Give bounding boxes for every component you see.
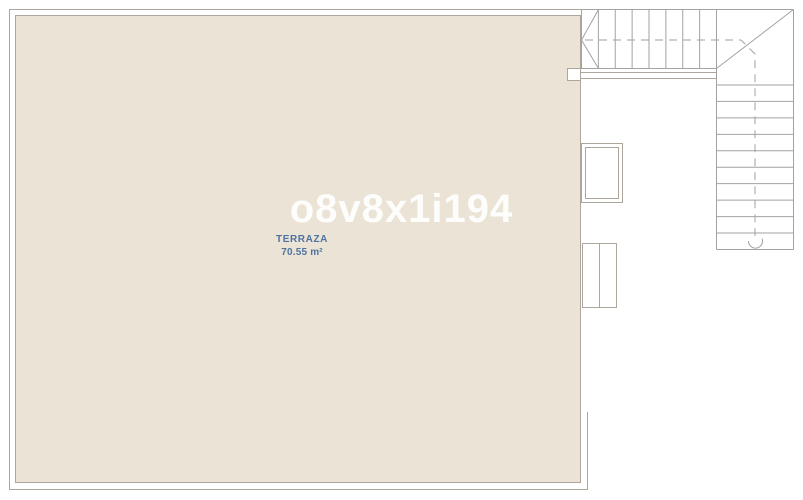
stair-top-run: [581, 10, 794, 69]
winder-diagonal: [582, 40, 599, 69]
floorplan: o8v8x1i194 TERRAZA 70.55 m²: [0, 0, 803, 500]
watermark-text: o8v8x1i194: [0, 187, 803, 232]
duct-box: [583, 244, 617, 308]
winder-diagonal: [582, 10, 599, 41]
room-area: 70.55 m²: [252, 247, 352, 259]
wall-end-cap: [568, 69, 581, 81]
room-label: TERRAZA 70.55 m²: [252, 234, 352, 259]
stair-start-arc: [748, 239, 762, 249]
corner-winder-diagonal: [717, 10, 794, 69]
room-name: TERRAZA: [252, 234, 352, 246]
plan-linework: [0, 0, 803, 500]
parapet-wall: [568, 69, 717, 81]
stair-top-run-treads: [598, 10, 699, 69]
